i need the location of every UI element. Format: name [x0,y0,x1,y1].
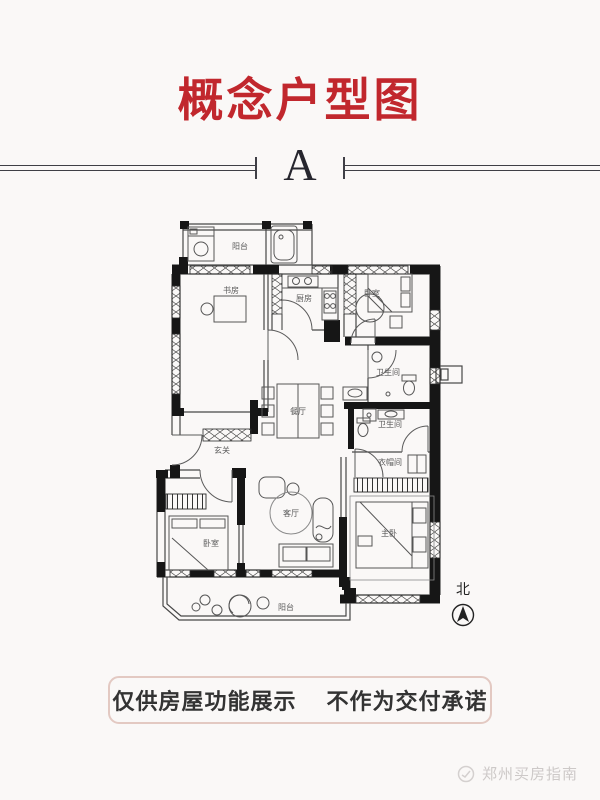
plan-walls-window [170,266,440,603]
bedroom-south-bed [169,516,228,570]
compass-needle-icon [457,606,469,622]
plan-doors [172,300,428,502]
room-label-bath-north: 卫生间 [376,367,400,377]
watermark-text: 郑州买房指南 [482,763,578,784]
hall-vanity [343,387,367,400]
room-label-cloakroom: 衣帽间 [378,457,402,467]
balcony-decor [192,595,269,617]
watermark-logo-icon [456,764,476,784]
room-label-bath-south: 卫生间 [378,419,402,429]
equipment-tub-icon [271,226,297,263]
room-label-living: 客厅 [283,508,299,518]
room-label-foyer: 玄关 [214,445,230,455]
plan-room-labels: 阳台 书房 厨房 卧室 卫生间 卫生间 衣帽间 餐厅 玄关 客厅 主卧 卧室 阳… [203,241,402,612]
study-desk [201,296,246,322]
washer-icon [188,227,214,261]
room-label-balcony-top: 阳台 [232,241,248,251]
disclaimer-box: 仅供房屋功能展示 不作为交付承诺 [108,676,492,724]
page: 概念户型图 A [0,0,600,800]
room-label-dining: 餐厅 [290,407,306,416]
room-label-bedroom-south: 卧室 [203,538,219,548]
disclaimer-text-2: 不作为交付承诺 [327,684,488,716]
disclaimer-text-1: 仅供房屋功能展示 [112,684,296,716]
living-furniture [259,477,333,567]
north-compass: 北 [453,581,474,626]
watermark: 郑州买房指南 [456,763,578,784]
bedroom-north-bed [356,274,412,328]
cloakroom-cabinet [408,455,426,473]
master-bed [350,496,434,580]
room-label-master: 主卧 [381,528,397,538]
room-label-kitchen: 厨房 [296,293,312,303]
north-label: 北 [456,581,470,597]
room-label-study: 书房 [223,285,239,295]
room-label-bedroom-north: 卧室 [364,288,380,298]
room-label-balcony-south: 阳台 [278,602,294,612]
